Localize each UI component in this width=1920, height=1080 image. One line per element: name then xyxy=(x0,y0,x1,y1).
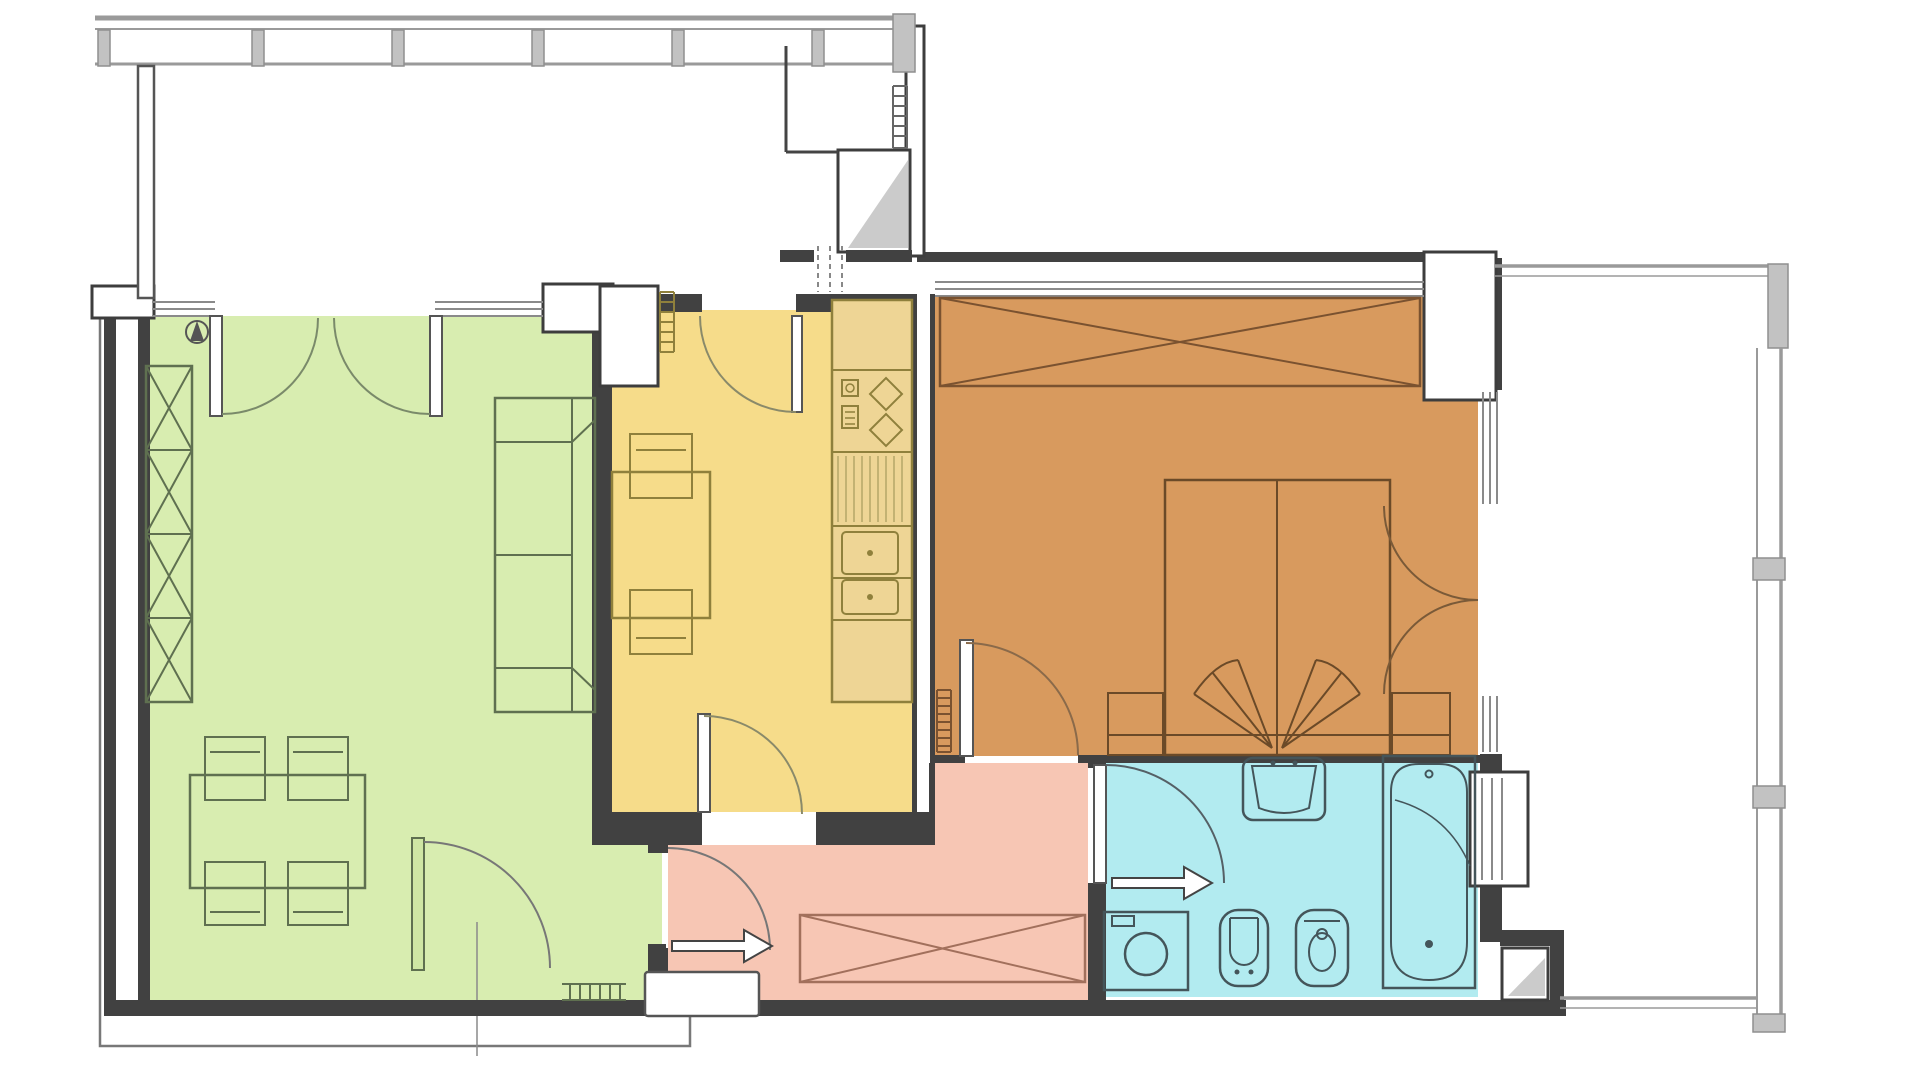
balcony-top-post-5 xyxy=(672,30,684,66)
bathtub-drain xyxy=(1425,940,1433,948)
window-living-top xyxy=(152,302,543,316)
bedroom-door-leaf xyxy=(960,640,973,756)
sink-basin-b-drain xyxy=(867,594,873,600)
window-bedroom-top xyxy=(935,282,1424,296)
floor-plan xyxy=(0,0,1920,1080)
bathroom-door-leaf xyxy=(1094,765,1106,883)
balcony-door-gap-bedroom xyxy=(1478,506,1504,694)
wall-left-inner xyxy=(138,298,150,1012)
balcony-top-post-2 xyxy=(252,30,264,66)
entry-threshold xyxy=(645,972,759,1016)
shaft-bottom-wall-b xyxy=(846,250,912,262)
balcony-top-post-4 xyxy=(532,30,544,66)
entry-door-hinge-block xyxy=(648,944,666,968)
french-door-right-leaf xyxy=(430,316,442,416)
balcony-top-end-post xyxy=(893,14,915,72)
pier-kitchen-inner xyxy=(600,286,658,386)
wall-hall-arm-left xyxy=(929,763,935,845)
wall-bottom-b xyxy=(759,1000,1566,1016)
bedroom-floor xyxy=(935,296,1478,756)
balcony-left-wall xyxy=(138,66,154,298)
toilet-dot-a xyxy=(1235,970,1240,975)
shaft-bottom-wall-a xyxy=(780,250,814,262)
balcony-right-post-a xyxy=(1753,558,1785,580)
wall-kitchen-bottom-a xyxy=(592,812,702,845)
floor-plan-svg xyxy=(0,0,1920,1080)
living-room-floor xyxy=(150,316,662,1000)
kitchen-door-bottom-leaf xyxy=(698,714,710,812)
living-interior-door-leaf xyxy=(412,838,424,970)
wall-left-outer xyxy=(104,298,116,1012)
balcony-right-post-b xyxy=(1753,786,1785,808)
pier-bedroom-top-right xyxy=(1424,252,1496,400)
balcony-right-post-c xyxy=(1753,1014,1785,1032)
kitchen-radiator xyxy=(660,292,674,352)
toilet-dot-b xyxy=(1249,970,1254,975)
french-door-left-leaf xyxy=(210,316,222,416)
wall-right-jog-a xyxy=(1500,930,1564,946)
bathroom-window-block xyxy=(1470,772,1528,886)
wall-bottom-a xyxy=(104,1000,645,1016)
balcony-top-post-6 xyxy=(812,30,824,66)
sink-basin-a-drain xyxy=(867,550,873,556)
wall-kitchen-bottom-b xyxy=(816,812,935,845)
kitchen-door-top-leaf xyxy=(792,316,802,412)
washbasin-tap-a xyxy=(1271,761,1276,766)
wall-kitchen-bedroom-b xyxy=(930,294,935,812)
balcony-top-post-1 xyxy=(98,30,110,66)
wall-top-right xyxy=(917,252,1436,262)
wall-hall-annex-a xyxy=(648,845,668,853)
kitchen-counter xyxy=(832,300,912,702)
balcony-right-corner xyxy=(1768,264,1788,348)
balcony-top-post-3 xyxy=(392,30,404,66)
washbasin-tap-b xyxy=(1293,761,1298,766)
